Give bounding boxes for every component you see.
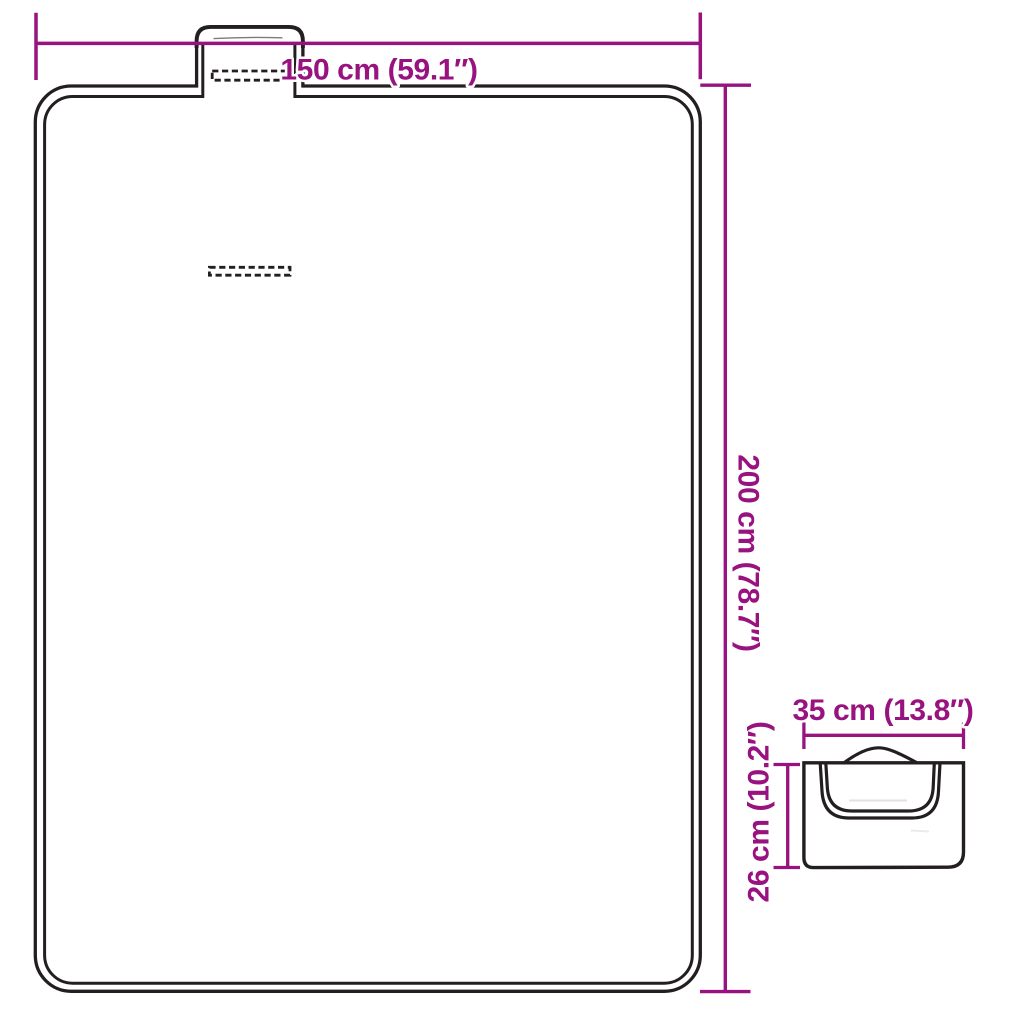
svg-text:200 cm (78.7″): 200 cm (78.7″) (732, 454, 765, 651)
svg-text:35 cm (13.8″): 35 cm (13.8″) (793, 694, 974, 727)
svg-text:26 cm (10.2″): 26 cm (10.2″) (743, 722, 776, 903)
svg-text:150 cm (59.1″): 150 cm (59.1″) (280, 54, 477, 87)
